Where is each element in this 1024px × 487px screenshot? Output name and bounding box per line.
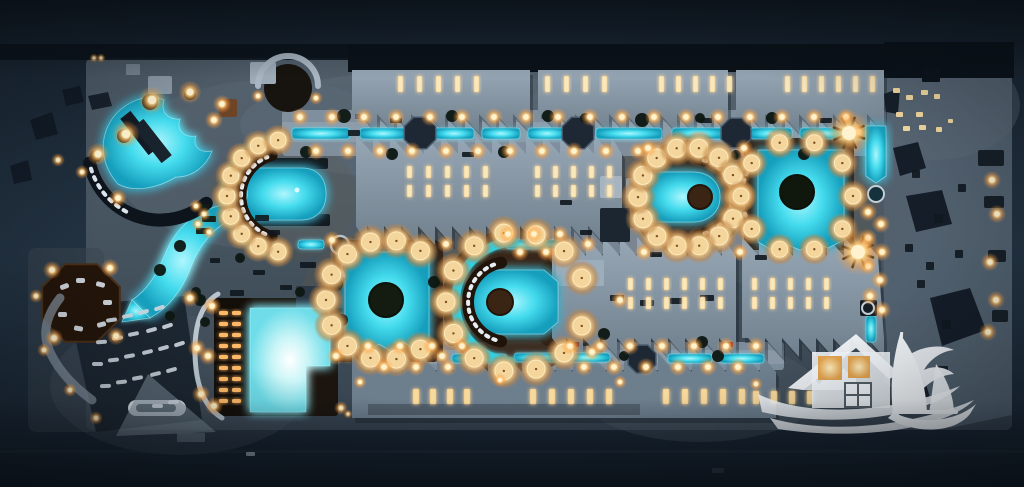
light-point-core xyxy=(339,406,343,410)
tree xyxy=(154,264,166,276)
light-point-core xyxy=(361,114,367,120)
lounger xyxy=(96,340,107,345)
light-point-core xyxy=(691,343,697,349)
canal xyxy=(292,128,350,139)
pool-island xyxy=(487,289,513,315)
light-point-core xyxy=(445,364,451,370)
lit-lounger xyxy=(219,333,228,337)
furniture xyxy=(253,270,265,275)
lit-doorway xyxy=(701,389,707,404)
light-point-core xyxy=(459,114,465,120)
umbrella-pole xyxy=(675,147,677,149)
furniture xyxy=(268,230,280,235)
canal xyxy=(866,316,876,342)
skylight xyxy=(436,76,441,92)
light-point-core xyxy=(198,391,204,397)
lit-window xyxy=(916,112,923,117)
skylight xyxy=(589,185,594,197)
light-point-core xyxy=(987,259,993,265)
tree xyxy=(235,253,245,263)
skylight xyxy=(752,297,757,309)
light-point-core xyxy=(122,130,130,138)
structure xyxy=(922,68,940,82)
skylight xyxy=(693,76,698,92)
furniture xyxy=(255,215,269,221)
light-point-core xyxy=(202,212,206,216)
light-point-core xyxy=(365,343,371,349)
light-point-core xyxy=(297,114,303,120)
skylight xyxy=(770,297,775,309)
skylight xyxy=(802,76,807,92)
house-window-icon xyxy=(844,382,872,408)
lit-lounger xyxy=(232,377,241,381)
light-point-core xyxy=(393,114,399,120)
light-point-core xyxy=(93,57,96,60)
umbrella-pole xyxy=(563,250,565,252)
umbrella-pole xyxy=(257,245,259,247)
vehicle xyxy=(246,452,255,456)
skylight xyxy=(718,278,723,290)
light-point-core xyxy=(531,231,537,237)
light-point-core xyxy=(429,343,435,349)
skylight xyxy=(700,297,705,309)
skylight xyxy=(682,297,687,309)
pool-island xyxy=(780,175,814,209)
umbrella-pole xyxy=(813,248,815,250)
umbrella-pole xyxy=(642,174,644,176)
furniture xyxy=(280,285,292,290)
skylight xyxy=(682,278,687,290)
skylight xyxy=(417,76,422,92)
light-point-core xyxy=(683,114,689,120)
light-point-core xyxy=(314,96,318,100)
canal xyxy=(298,240,324,249)
light-point-core xyxy=(675,364,681,370)
light-point-core xyxy=(115,195,121,201)
light-point-core xyxy=(543,249,549,255)
planter xyxy=(30,112,58,140)
light-point-core xyxy=(619,114,625,120)
road-band xyxy=(884,42,1014,78)
light-point-core xyxy=(737,249,743,255)
house-lit-window xyxy=(848,356,870,378)
light-point-core xyxy=(878,221,884,227)
light-point-core xyxy=(842,126,856,140)
umbrella-pole xyxy=(330,273,332,275)
light-point-core xyxy=(100,57,103,60)
furniture xyxy=(348,130,360,136)
light-point-core xyxy=(95,151,102,158)
skylight xyxy=(664,297,669,309)
light-point-core xyxy=(148,96,156,104)
umbrella-pole xyxy=(369,241,371,243)
light-point-core xyxy=(735,364,741,370)
skylight xyxy=(407,185,412,197)
light-point-core xyxy=(507,148,513,154)
lit-doorway xyxy=(682,389,688,404)
light-point-core xyxy=(723,343,729,349)
tree xyxy=(165,311,175,321)
umbrella-pole xyxy=(637,196,639,198)
lounger xyxy=(100,384,111,388)
skylight xyxy=(710,76,715,92)
light-point-core xyxy=(867,293,873,299)
lit-doorway xyxy=(430,389,436,404)
light-point-core xyxy=(587,114,593,120)
lit-lounger xyxy=(219,311,228,315)
umbrella-pole xyxy=(473,245,475,247)
lit-lounger xyxy=(232,388,241,392)
light-point-core xyxy=(517,249,523,255)
skylight xyxy=(571,185,576,197)
lit-doorway xyxy=(753,391,759,404)
furniture xyxy=(942,320,951,329)
umbrella-pole xyxy=(330,324,332,326)
lit-lounger xyxy=(232,399,241,403)
light-point-core xyxy=(51,335,57,341)
canal xyxy=(596,128,662,139)
tree xyxy=(295,287,305,297)
umbrella-pole xyxy=(503,370,505,372)
umbrella-pole xyxy=(581,277,583,279)
umbrella-pole xyxy=(841,162,843,164)
light-point-core xyxy=(618,380,622,384)
skylight xyxy=(553,166,558,178)
light-point-core xyxy=(651,114,657,120)
light-point-core xyxy=(347,413,350,416)
light-point-core xyxy=(994,211,1000,217)
furniture xyxy=(300,262,316,268)
light-point-core xyxy=(603,148,609,154)
umbrella-pole xyxy=(452,332,454,334)
skylight xyxy=(483,185,488,197)
lit-lounger xyxy=(219,377,228,381)
skylight xyxy=(806,297,811,309)
umbrella-pole xyxy=(445,301,447,303)
umbrella-pole xyxy=(241,233,243,235)
lit-lounger xyxy=(219,322,228,326)
umbrella-pole xyxy=(535,368,537,370)
canal xyxy=(434,128,474,139)
planter xyxy=(62,86,84,106)
table xyxy=(58,312,67,317)
light-point-core xyxy=(207,230,211,234)
furniture xyxy=(917,280,925,288)
skylight xyxy=(464,185,469,197)
lit-lounger xyxy=(232,366,241,370)
lit-lounger xyxy=(232,333,241,337)
light-point-core xyxy=(617,297,623,303)
lit-doorway xyxy=(447,389,453,404)
boom xyxy=(892,410,958,414)
skylight xyxy=(455,76,460,92)
umbrella-pole xyxy=(698,147,700,149)
skylight xyxy=(571,166,576,178)
skylight xyxy=(426,166,431,178)
lit-doorway xyxy=(530,389,536,404)
light-point-core xyxy=(196,222,200,226)
light-point-core xyxy=(641,249,647,255)
lit-doorway xyxy=(549,389,555,404)
light-point-core xyxy=(443,241,449,247)
light-point-core xyxy=(779,114,785,120)
light-point-core xyxy=(358,380,362,384)
light-point-core xyxy=(589,349,595,355)
skylight xyxy=(727,76,732,92)
light-point-core xyxy=(443,148,449,154)
skylight xyxy=(836,76,841,92)
lit-doorway xyxy=(789,391,795,404)
lit-doorway xyxy=(720,389,726,404)
skylight xyxy=(806,278,811,290)
light-point-core xyxy=(256,94,260,98)
furniture xyxy=(955,250,963,258)
umbrella-pole xyxy=(277,251,279,253)
lit-window xyxy=(896,112,903,117)
lit-window xyxy=(934,94,940,99)
structure xyxy=(368,404,640,415)
furniture xyxy=(210,258,220,263)
light-point-core xyxy=(851,245,865,259)
skylight xyxy=(819,76,824,92)
umbrella-pole xyxy=(257,145,259,147)
skylight xyxy=(788,297,793,309)
structure xyxy=(600,208,630,242)
umbrella-pole xyxy=(698,245,700,247)
table xyxy=(76,278,85,283)
west-pool xyxy=(242,168,326,220)
umbrella-pole xyxy=(841,228,843,230)
skylight xyxy=(700,278,705,290)
skylight xyxy=(607,166,612,178)
skylight xyxy=(535,166,540,178)
skylight xyxy=(545,76,550,92)
skylight xyxy=(659,76,664,92)
skylight xyxy=(445,166,450,178)
light-point-core xyxy=(80,170,84,174)
lit-doorway xyxy=(587,389,593,404)
skylight xyxy=(607,185,612,197)
light-point-core xyxy=(427,114,433,120)
pool-island xyxy=(369,283,403,317)
lit-window xyxy=(921,90,928,95)
lit-lounger xyxy=(232,344,241,348)
light-point-core xyxy=(715,114,721,120)
light-point-core xyxy=(491,114,497,120)
road-band xyxy=(0,450,1024,453)
umbrella-pole xyxy=(750,228,752,230)
skylight xyxy=(602,76,607,92)
light-point-core xyxy=(459,343,465,349)
umbrella-pole xyxy=(369,357,371,359)
light-point-core xyxy=(205,353,211,359)
skylight xyxy=(785,76,790,92)
light-point-core xyxy=(505,231,511,237)
lit-lounger xyxy=(219,388,228,392)
spa-ring xyxy=(868,186,884,202)
lit-doorway xyxy=(568,389,574,404)
pool-island xyxy=(295,188,300,193)
light-point-core xyxy=(333,353,339,359)
canal xyxy=(360,128,406,139)
umbrella-pole xyxy=(778,142,780,144)
light-point-core xyxy=(397,343,403,349)
furniture xyxy=(958,184,966,192)
umbrella-pole xyxy=(395,240,397,242)
light-point-core xyxy=(705,364,711,370)
umbrella-pole xyxy=(230,175,232,177)
skylight xyxy=(583,76,588,92)
light-point-core xyxy=(345,148,351,154)
light-point-core xyxy=(555,114,561,120)
furniture xyxy=(992,310,1008,322)
lit-window xyxy=(903,126,910,131)
lit-lounger xyxy=(219,366,228,370)
structure xyxy=(177,433,205,442)
structure xyxy=(126,64,140,75)
light-point-core xyxy=(475,148,481,154)
light-point-core xyxy=(557,231,563,237)
light-point-core xyxy=(219,101,225,107)
light-point-core xyxy=(313,148,319,154)
light-point-core xyxy=(187,295,193,301)
lit-window xyxy=(893,88,900,93)
light-point-core xyxy=(539,148,545,154)
umbrella-pole xyxy=(346,253,348,255)
umbrella-pole xyxy=(395,358,397,360)
umbrella-pole xyxy=(452,269,454,271)
skylight xyxy=(664,278,669,290)
furniture xyxy=(926,262,934,270)
canal xyxy=(482,128,520,139)
light-point-core xyxy=(56,158,60,162)
lit-lounger xyxy=(232,311,241,315)
light-point-core xyxy=(377,148,383,154)
skylight xyxy=(474,76,479,92)
light-point-core xyxy=(993,297,999,303)
lit-lounger xyxy=(232,355,241,359)
furniture xyxy=(905,244,913,252)
skylight xyxy=(464,166,469,178)
skylight xyxy=(824,297,829,309)
skylight xyxy=(426,185,431,197)
light-point-core xyxy=(34,294,38,298)
light-point-core xyxy=(877,277,883,283)
lit-lounger xyxy=(219,344,228,348)
canal xyxy=(528,128,566,139)
light-point-core xyxy=(567,343,573,349)
umbrella-pole xyxy=(230,215,232,217)
skylight xyxy=(589,166,594,178)
light-point-core xyxy=(194,204,198,208)
skylight xyxy=(752,278,757,290)
light-point-core xyxy=(627,343,633,349)
light-point-core xyxy=(811,114,817,120)
light-point-core xyxy=(611,364,617,370)
umbrella-pole xyxy=(718,235,720,237)
light-point-core xyxy=(113,333,119,339)
light-point-core xyxy=(754,382,758,386)
umbrella-pole xyxy=(732,217,734,219)
umbrella-pole xyxy=(656,235,658,237)
lit-window xyxy=(906,95,913,100)
skylight xyxy=(870,76,875,92)
lit-lounger xyxy=(219,355,228,359)
light-point-core xyxy=(741,145,747,151)
lit-window xyxy=(936,127,942,132)
light-point-core xyxy=(42,348,46,352)
table xyxy=(103,300,112,305)
pool-island xyxy=(688,185,712,209)
skylight xyxy=(676,76,681,92)
light-point-core xyxy=(381,364,387,370)
skylight xyxy=(628,278,633,290)
skylight xyxy=(407,166,412,178)
lit-doorway xyxy=(413,389,419,404)
tree xyxy=(200,317,210,327)
furniture xyxy=(230,290,244,296)
light-point-core xyxy=(209,303,215,309)
light-point-core xyxy=(49,267,55,273)
umbrella-pole xyxy=(419,250,421,252)
umbrella-pole xyxy=(740,195,742,197)
umbrella-pole xyxy=(813,142,815,144)
light-point-core xyxy=(585,241,591,247)
light-point-core xyxy=(413,364,419,370)
umbrella-pole xyxy=(732,174,734,176)
umbrella-pole xyxy=(581,325,583,327)
skylight xyxy=(646,297,651,309)
umbrella-pole xyxy=(778,248,780,250)
lit-doorway xyxy=(606,389,612,404)
planter xyxy=(10,160,32,184)
umbrella-pole xyxy=(277,139,279,141)
light-point-core xyxy=(985,329,991,335)
light-point-core xyxy=(187,89,194,96)
light-point-core xyxy=(865,209,871,215)
furniture xyxy=(978,150,1004,166)
light-point-core xyxy=(409,148,415,154)
umbrella-pole xyxy=(852,195,854,197)
skylight xyxy=(483,166,488,178)
light-point-core xyxy=(989,177,995,183)
skylight xyxy=(553,185,558,197)
lit-window xyxy=(919,125,926,130)
light-point-core xyxy=(753,343,759,349)
light-point-core xyxy=(643,364,649,370)
light-point-core xyxy=(329,237,335,243)
lit-doorway xyxy=(464,389,470,404)
umbrella-pole xyxy=(226,195,228,197)
lounger xyxy=(92,362,103,366)
vehicle xyxy=(712,468,724,473)
skylight xyxy=(535,185,540,197)
aerial-resort-night-render xyxy=(0,0,1024,487)
light-point-core xyxy=(498,378,502,382)
umbrella-pole xyxy=(419,348,421,350)
light-point-core xyxy=(645,145,651,151)
light-point-core xyxy=(571,148,577,154)
house-lit-window xyxy=(818,356,842,380)
skylight xyxy=(445,185,450,197)
light-point-core xyxy=(879,307,885,313)
umbrella-pole xyxy=(718,157,720,159)
resort-masterplan-canvas xyxy=(0,0,1024,487)
lounger xyxy=(152,404,163,408)
umbrella-pole xyxy=(325,299,327,301)
skylight xyxy=(770,278,775,290)
lit-window xyxy=(948,119,953,123)
